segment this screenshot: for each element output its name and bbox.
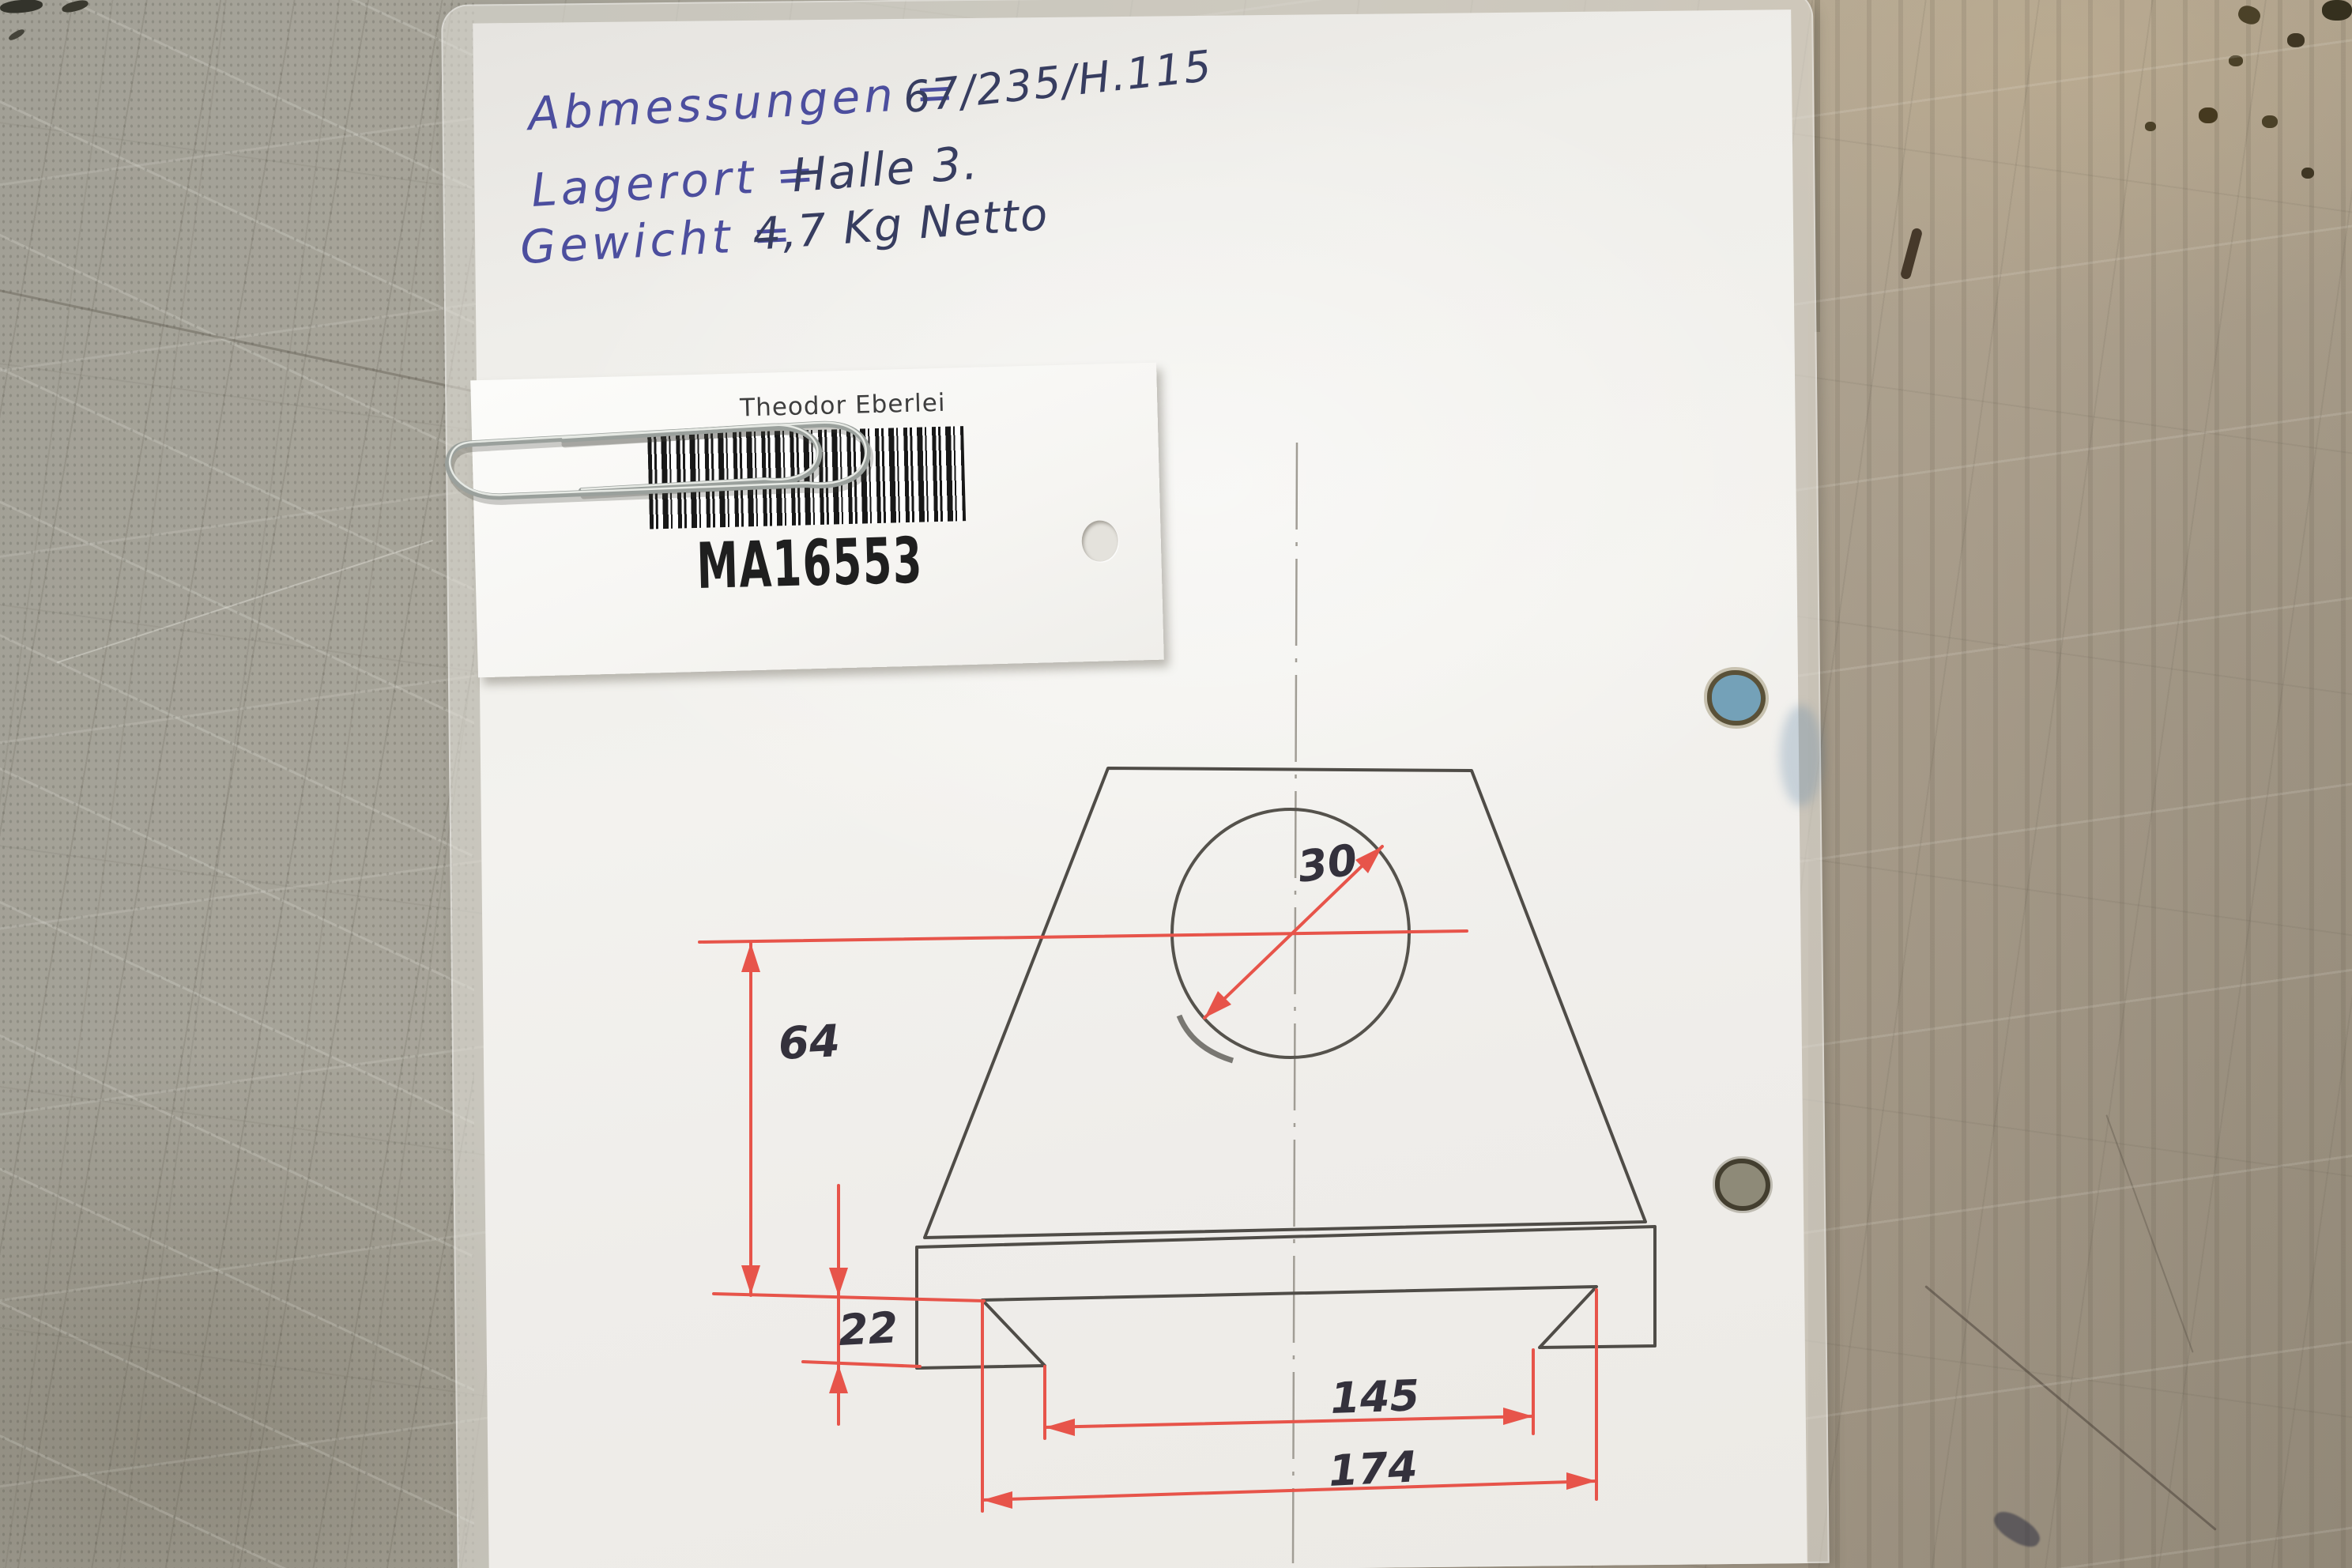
table-scratch [0, 282, 508, 399]
table-scratch [2105, 1114, 2193, 1352]
part-body-trapezoid [925, 768, 1645, 1238]
dim-ref-line-circle-center [699, 931, 1467, 942]
table-scratch [57, 540, 433, 663]
dim-ref-line-foot-bottom [803, 1362, 920, 1366]
table-right-texture [1808, 0, 2352, 1568]
dim-145-label: 145 [1329, 1370, 1420, 1423]
table-spot [61, 0, 89, 14]
punch-hole-top [1707, 670, 1766, 726]
table-left-texture [0, 0, 474, 1568]
table-spot [2262, 115, 2278, 128]
table-spot [2301, 168, 2314, 179]
table-spot [2322, 0, 2352, 21]
table-stain [1989, 1506, 2045, 1552]
center-line [1293, 443, 1297, 1563]
dim-174-line [982, 1481, 1596, 1500]
table-blue-smudge [1780, 705, 1822, 806]
dim-30-label: 30 [1295, 835, 1360, 892]
table-spot [2199, 107, 2218, 123]
paperclip [427, 395, 917, 537]
dim-22-label: 22 [837, 1302, 899, 1355]
dim-ref-line-base-bottom [714, 1294, 984, 1301]
table-stain [1900, 227, 1924, 280]
dim-64-label: 64 [777, 1016, 841, 1070]
table-spot [2229, 55, 2243, 66]
table-scratch [1924, 1285, 2217, 1531]
dim-174-label: 174 [1327, 1442, 1419, 1496]
table-spot [2145, 122, 2156, 131]
table-spot [0, 0, 43, 14]
dimension-arrowheads [741, 846, 1596, 1509]
photo-scene: Abmessungen = 67/235/H.115 Lagerort = Ha… [0, 0, 2352, 1568]
punch-hole-bottom [1715, 1159, 1770, 1211]
part-base-plate [917, 1227, 1655, 1368]
dim-145-line [1045, 1416, 1533, 1427]
table-spot [2236, 3, 2263, 27]
table-spot [2287, 33, 2305, 47]
tag-punch-hole [1081, 520, 1118, 562]
table-spot [7, 28, 25, 42]
